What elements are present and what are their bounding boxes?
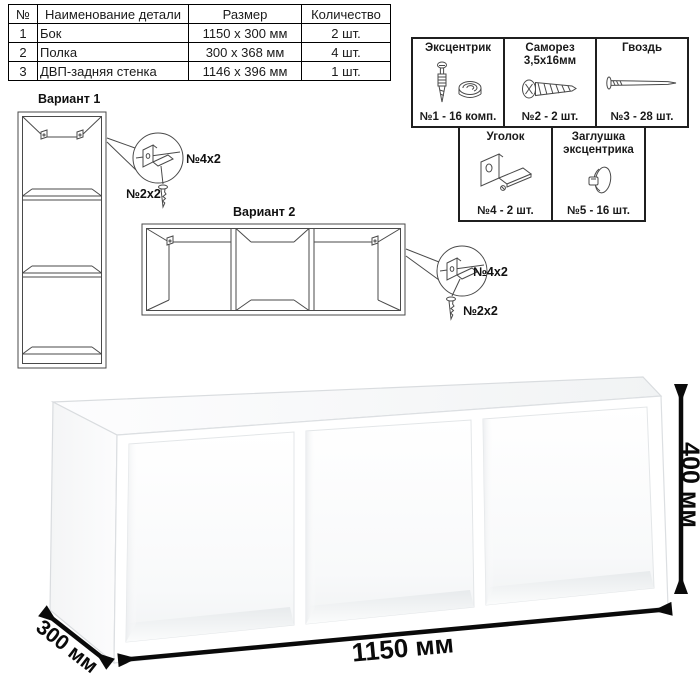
nail-icon: [602, 72, 682, 94]
callout-bracket-label: №4х2: [186, 152, 221, 166]
product-photo: 1150 мм 300 мм 400 мм: [0, 360, 700, 690]
shelf-render: [50, 377, 668, 663]
parts-table: № Наименование детали Размер Количество …: [8, 4, 391, 81]
table-row: 1 Бок 1150 х 300 мм 2 шт.: [9, 24, 391, 43]
column-header-size: Размер: [189, 5, 302, 24]
hardware-item-count: №2 - 2 шт.: [522, 111, 578, 126]
screw-icon: [447, 297, 456, 319]
part-quantity-cell: 2 шт.: [302, 24, 391, 43]
hardware-item-title: Заглушка эксцентрика: [553, 128, 644, 157]
corner-bracket-icon: [372, 236, 378, 245]
hardware-item-title: Уголок: [486, 128, 524, 144]
part-number-cell: 2: [9, 43, 38, 62]
part-size-cell: 300 х 368 мм: [189, 43, 302, 62]
part-name-cell: ДВП-задняя стенка: [38, 62, 189, 81]
hardware-item-cam-cap: Заглушка эксцентрика №5 - 16 шт.: [551, 126, 646, 222]
part-name-cell: Полка: [38, 43, 189, 62]
assembly-instruction-page: № Наименование детали Размер Количество …: [0, 0, 700, 690]
table-row: 2 Полка 300 х 368 мм 4 шт.: [9, 43, 391, 62]
corner-bracket-icon: [41, 130, 83, 139]
part-quantity-cell: 4 шт.: [302, 43, 391, 62]
column-header-number: №: [9, 5, 38, 24]
hardware-item-count: №5 - 16 шт.: [567, 205, 630, 220]
hardware-item-title: Гвоздь: [622, 39, 662, 55]
hardware-box: Эксцентрик: [411, 37, 689, 222]
hardware-item-title: Саморез 3,5х16мм: [505, 39, 595, 68]
part-name-cell: Бок: [38, 24, 189, 43]
variant-1-title: Вариант 1: [38, 92, 100, 106]
callout-screw-label: №2х2: [463, 304, 498, 318]
part-number-cell: 1: [9, 24, 38, 43]
cam-cap-icon: [577, 160, 621, 202]
hardware-item-screw: Саморез 3,5х16мм №2 - 2 шт.: [503, 37, 597, 128]
eccentric-cam-icon: [426, 60, 490, 106]
part-size-cell: 1146 х 396 мм: [189, 62, 302, 81]
hardware-row-1: Эксцентрик: [411, 37, 689, 128]
table-row: 3 ДВП-задняя стенка 1146 х 396 мм 1 шт.: [9, 62, 391, 81]
part-size-cell: 1150 х 300 мм: [189, 24, 302, 43]
dimension-height: 400 мм: [676, 386, 700, 592]
column-header-quantity: Количество: [302, 5, 391, 24]
hardware-item-count: №3 - 28 шт.: [611, 111, 674, 126]
part-number-cell: 3: [9, 62, 38, 81]
parts-table-header-row: № Наименование детали Размер Количество: [9, 5, 391, 24]
hardware-item-count: №1 - 16 комп.: [420, 111, 497, 126]
screw-icon: [518, 73, 582, 105]
dimension-height-label: 400 мм: [676, 442, 700, 528]
hardware-item-title: Эксцентрик: [425, 39, 491, 55]
corner-bracket-icon: [475, 152, 537, 196]
part-quantity-cell: 1 шт.: [302, 62, 391, 81]
variant-2-title: Вариант 2: [233, 205, 295, 219]
variant-2-drawing: Вариант 2: [140, 196, 540, 341]
hardware-item-nail: Гвоздь №3 - 28 шт.: [595, 37, 689, 128]
callout-bracket-label: №4х2: [473, 265, 508, 279]
corner-bracket-icon: [167, 236, 173, 245]
hardware-item-eccentric: Эксцентрик: [411, 37, 505, 128]
column-header-name: Наименование детали: [38, 5, 189, 24]
